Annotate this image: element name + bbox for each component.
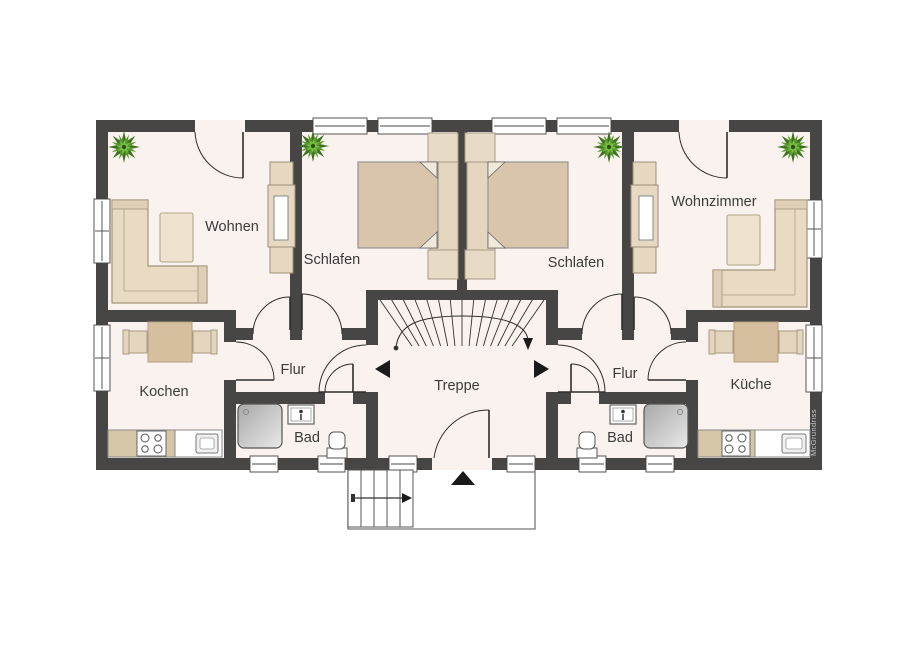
window-wohnzimmer <box>806 200 822 258</box>
coffee-table-wohnen <box>160 213 193 262</box>
window-schlafen-left-2 <box>378 118 432 134</box>
label-wohnzimmer: Wohnzimmer <box>671 194 756 210</box>
window-kueche <box>806 325 822 392</box>
window-kochen <box>94 325 110 391</box>
entry-arrow-icon <box>451 471 475 485</box>
toilet-icon-right <box>577 432 597 458</box>
window-schlafen-left-1 <box>313 118 367 134</box>
label-bad-right: Bad <box>607 430 633 446</box>
floor-plan: Wohnen Schlafen Schlafen Wohnzimmer Koch… <box>0 0 916 647</box>
floor-plan-svg: Wohnen Schlafen Schlafen Wohnzimmer Koch… <box>0 0 916 647</box>
label-flur-left: Flur <box>281 362 306 378</box>
external-steps <box>348 470 413 527</box>
stove-icon-right <box>722 431 750 456</box>
label-kueche: Küche <box>730 377 771 393</box>
label-schlafen-right: Schlafen <box>548 255 604 271</box>
window-bad-left-1 <box>250 456 278 472</box>
label-bad-left: Bad <box>294 430 320 446</box>
coffee-table-wohnzimmer <box>727 215 760 265</box>
window-wohnen <box>94 199 110 263</box>
counter-kueche <box>698 430 810 457</box>
label-flur-right: Flur <box>613 366 638 382</box>
window-bad-right-2 <box>646 456 674 472</box>
wardrobe-icon-wohnen <box>268 162 295 273</box>
washbasin-icon-left <box>288 405 314 424</box>
window-schlafen-right-1 <box>492 118 546 134</box>
label-schlafen-left: Schlafen <box>304 252 360 268</box>
shower-icon-left <box>238 404 282 448</box>
external-landing <box>348 470 535 529</box>
label-kochen: Kochen <box>139 384 188 400</box>
counter-kochen <box>108 430 222 457</box>
kitchen-sink-icon-right <box>782 434 806 453</box>
watermark-text: McGrundriss <box>809 409 818 456</box>
wardrobe-icon-wohnzimmer <box>631 162 658 273</box>
washbasin-icon-right <box>610 405 636 424</box>
label-treppe: Treppe <box>434 378 479 394</box>
label-wohnen: Wohnen <box>205 219 259 235</box>
kitchen-sink-icon-left <box>196 434 218 453</box>
shower-icon-right <box>644 404 688 448</box>
toilet-icon-left <box>327 432 347 458</box>
window-schlafen-right-2 <box>557 118 611 134</box>
stove-icon-left <box>137 431 166 456</box>
window-entry-right <box>507 456 535 472</box>
